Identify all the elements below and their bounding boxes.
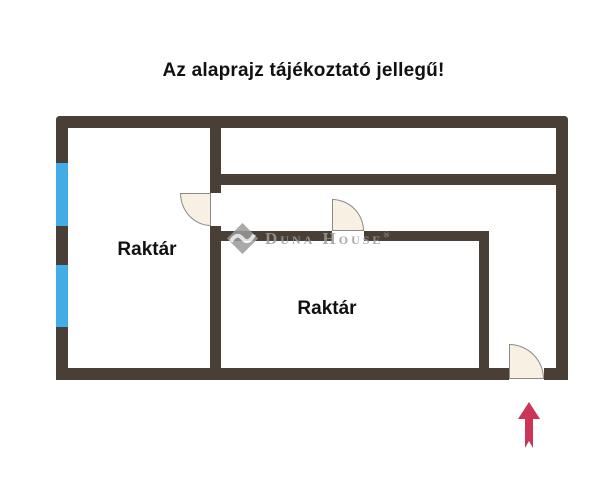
- wall-corridor-horizontal: [210, 174, 556, 185]
- entrance-door-arc-icon: [509, 344, 544, 379]
- door-arc-icon: [332, 199, 364, 231]
- disclaimer-title: Az alaprajz tájékoztató jellegű!: [0, 60, 607, 82]
- window-icon: [56, 265, 68, 327]
- wall-middle-vertical-lower: [210, 226, 221, 368]
- wall-bottom-left-segment: [56, 368, 509, 380]
- entrance-arrow-icon: [517, 402, 541, 454]
- wall-inner-room-right: [479, 231, 489, 368]
- brand-name: Duna House®: [265, 229, 392, 249]
- room-label: Raktár: [277, 298, 377, 320]
- wall-right: [556, 116, 568, 380]
- wall-bottom-right-segment: [544, 368, 568, 380]
- duna-house-logo-icon: [226, 222, 259, 255]
- window-icon: [56, 163, 68, 226]
- floor-plan-canvas: Az alaprajz tájékoztató jellegű! Raktár …: [0, 0, 607, 480]
- brand-watermark: Duna House®: [226, 222, 392, 255]
- wall-top: [56, 116, 568, 128]
- registered-mark: ®: [383, 230, 392, 239]
- wall-left: [56, 116, 68, 380]
- door-arc-icon: [180, 193, 211, 226]
- room-label: Raktár: [97, 239, 197, 261]
